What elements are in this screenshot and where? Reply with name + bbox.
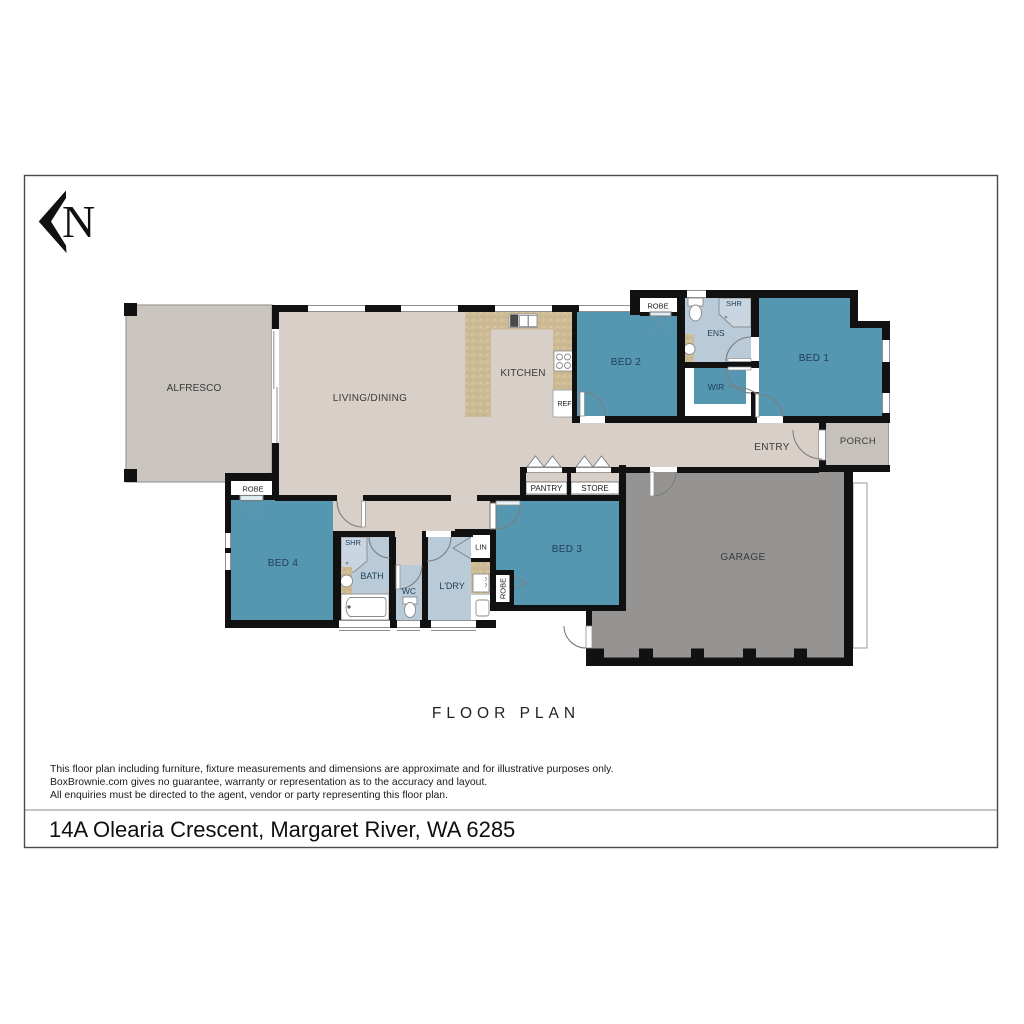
svg-text:BATH: BATH [360, 571, 383, 581]
svg-text:FLOOR PLAN: FLOOR PLAN [432, 705, 580, 722]
svg-text:BoxBrownie.com gives no guaran: BoxBrownie.com gives no guarantee, warra… [50, 777, 487, 788]
svg-text:ENS: ENS [707, 328, 725, 338]
svg-text:BED 1: BED 1 [799, 353, 830, 364]
svg-text:WIR: WIR [708, 382, 725, 392]
svg-text:SHR: SHR [726, 299, 742, 308]
svg-text:ENTRY: ENTRY [754, 442, 790, 453]
svg-text:ROBE: ROBE [499, 578, 508, 599]
svg-text:BED 3: BED 3 [552, 544, 583, 555]
svg-text:L'DRY: L'DRY [439, 581, 465, 591]
svg-text:STORE: STORE [581, 484, 608, 493]
svg-text:14A Olearia Crescent, Margaret: 14A Olearia Crescent, Margaret River, WA… [49, 817, 515, 842]
svg-text:LIN: LIN [475, 543, 487, 552]
svg-text:N: N [62, 196, 95, 247]
svg-text:GARAGE: GARAGE [720, 552, 765, 563]
svg-text:This floor plan including furn: This floor plan including furniture, fix… [50, 764, 614, 775]
svg-text:LIVING/DINING: LIVING/DINING [333, 393, 407, 404]
svg-text:SHR: SHR [345, 538, 361, 547]
svg-text:ROBE: ROBE [647, 302, 668, 311]
svg-text:WC: WC [402, 586, 416, 596]
svg-text:ALFRESCO: ALFRESCO [167, 383, 222, 394]
svg-text:All enquiries must be directed: All enquiries must be directed to the ag… [50, 790, 448, 801]
svg-text:PORCH: PORCH [840, 436, 876, 447]
svg-text:ROBE: ROBE [242, 485, 263, 494]
svg-text:BED 4: BED 4 [268, 558, 299, 569]
svg-text:KITCHEN: KITCHEN [500, 368, 545, 379]
svg-text:BED 2: BED 2 [611, 357, 642, 368]
svg-text:PANTRY: PANTRY [531, 484, 563, 493]
svg-text:REF: REF [558, 401, 572, 408]
